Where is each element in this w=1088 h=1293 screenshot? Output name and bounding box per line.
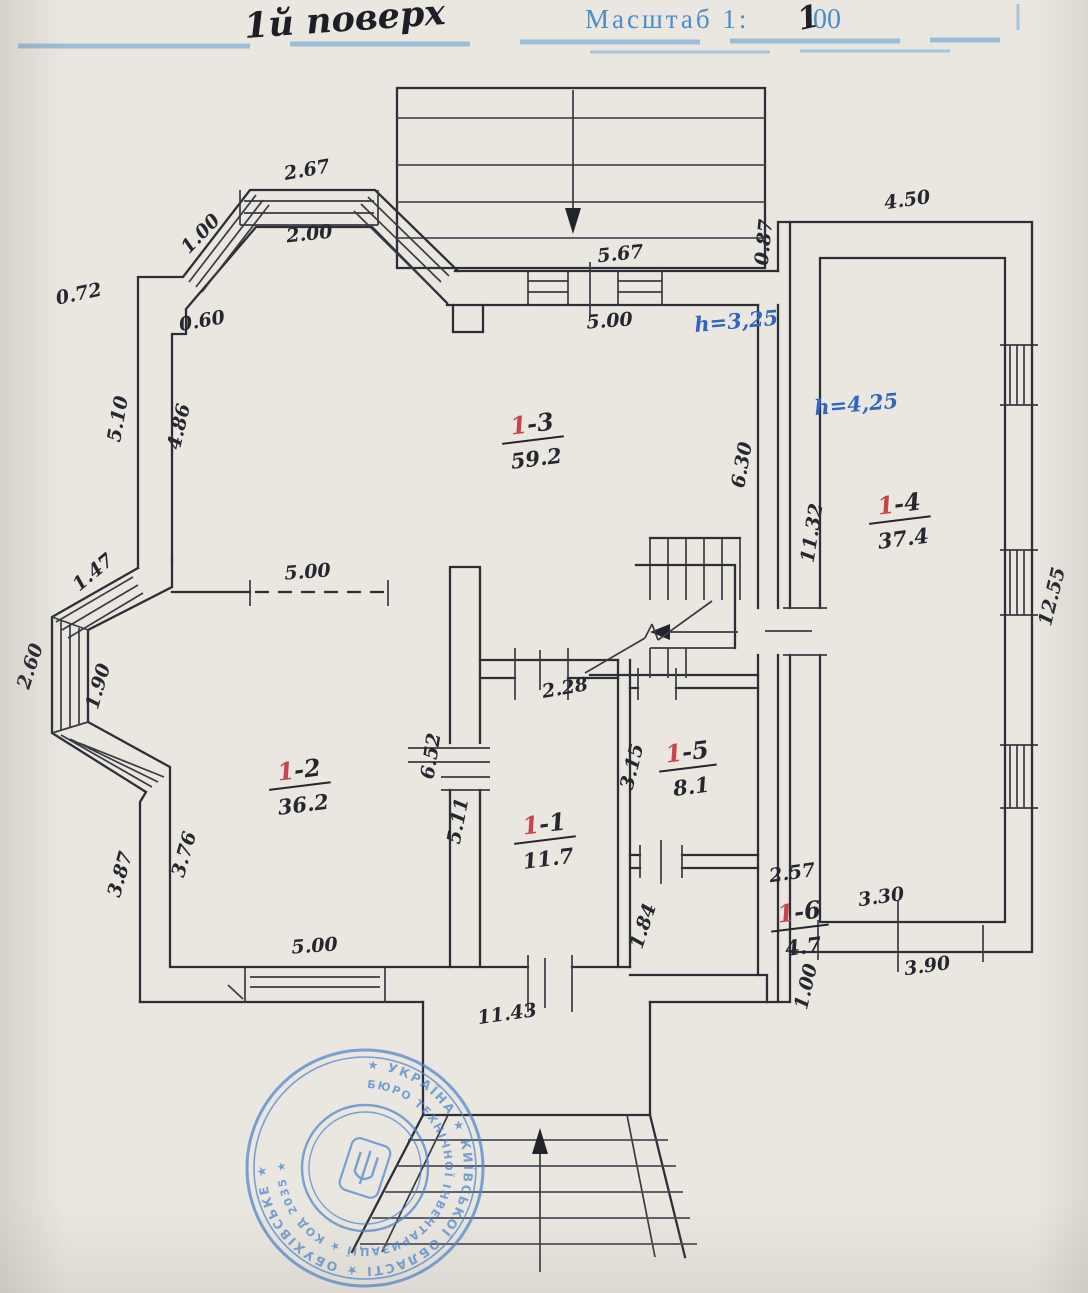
svg-text:1-2: 1-2	[276, 753, 323, 787]
dimension-label: 5.11	[443, 796, 473, 846]
room-area: 11.7	[521, 843, 575, 874]
dimension-tick	[818, 900, 983, 972]
window-top-left	[528, 271, 568, 305]
room-area: 36.2	[276, 789, 330, 820]
room-number: -2	[292, 753, 322, 785]
header-dashed-line	[18, 44, 470, 46]
window-nw-top	[240, 190, 378, 225]
dimension-label: 5.67	[596, 241, 644, 268]
floorplan-drawing: 1й поверх Масштаб 1: 1 00	[0, 0, 1088, 1293]
scale-value-printed: 00	[813, 4, 841, 35]
room-labels: 1-3 59.2 1-2 36.2 1-1 11.7 1-5 8.1 1-6 4…	[265, 406, 934, 963]
doorway-1-6	[640, 840, 682, 884]
dimension-label: 2.57	[767, 859, 817, 887]
dimension-label: 3.76	[167, 829, 201, 880]
dimension-label: 12.55	[1034, 565, 1070, 628]
dimension-label: 4.86	[163, 402, 195, 452]
dimension-label: 1.90	[81, 661, 115, 712]
dimension-label: 0.72	[54, 279, 104, 310]
room-number: -1	[537, 807, 567, 839]
header: 1й поверх Масштаб 1: 1 00	[18, 0, 1018, 52]
door-to-wing	[765, 608, 827, 655]
room-area: 37.4	[876, 523, 930, 554]
height-notes: h=3,25 h=4,25	[693, 305, 899, 420]
room-label-1-4: 1-4 37.4	[865, 486, 934, 555]
window-west-lower-angled	[61, 735, 164, 787]
doorway-1-5	[638, 668, 676, 700]
room-number: -3	[525, 407, 555, 439]
dimension-label: 5.00	[291, 933, 339, 958]
dimension-label: 2.00	[284, 221, 333, 248]
window-ne-angled	[354, 197, 449, 289]
dimension-label: 1.00	[790, 962, 822, 1012]
room-label-1-5: 1-5 8.1	[655, 734, 720, 803]
internal-staircase	[585, 538, 740, 678]
dimension-label: 6.52	[417, 731, 446, 780]
room-area: 8.1	[671, 772, 711, 801]
scale-label: Масштаб 1:	[585, 4, 749, 34]
dimension-label: 1.47	[68, 549, 118, 596]
svg-text:1-4: 1-4	[876, 487, 923, 521]
dimension-label: 5.10	[103, 394, 133, 443]
dimension-label: 3.87	[103, 849, 137, 900]
dimension-label: 3.90	[903, 952, 952, 980]
window-west-left	[52, 617, 88, 733]
svg-text:1-3: 1-3	[509, 407, 556, 441]
room-label-1-2: 1-2 36.2	[265, 752, 334, 821]
dimension-label: 5.00	[284, 559, 332, 584]
bti-stamp: ★ УКРАЇНА ★ КИЇВСЬКОЇ ОБЛАСТІ ★ ОБУХІВСЬ…	[247, 1050, 483, 1286]
header-dashed-line-2	[590, 51, 950, 52]
bottom-exterior-stairs	[352, 1002, 697, 1272]
stairs-down-arrow-icon	[565, 208, 581, 234]
dimension-label: 11.32	[797, 502, 828, 564]
room-area: 59.2	[509, 443, 563, 474]
window-top-right	[618, 271, 662, 305]
dimension-tick	[250, 580, 388, 606]
window-south	[228, 967, 385, 1002]
header-dashed-line	[520, 40, 1000, 42]
stairs-up-arrow-icon	[532, 1128, 548, 1154]
room-number: -5	[680, 735, 710, 767]
dimension-label: 4.50	[883, 186, 932, 214]
top-exterior-stairs	[397, 88, 765, 268]
svg-text:1-1: 1-1	[521, 807, 568, 841]
dimension-label: 5.00	[586, 308, 634, 333]
dimension-label: 2.67	[281, 155, 331, 185]
room-label-1-1: 1-1 11.7	[510, 806, 579, 875]
dimension-label: 6.30	[727, 440, 757, 489]
dimension-label: 0.87	[751, 218, 778, 266]
floorplan-page: 1й поверх Масштаб 1: 1 00	[0, 0, 1088, 1293]
room-number: -6	[792, 894, 822, 926]
dimension-label: 2.28	[539, 673, 589, 703]
exterior-walls	[52, 190, 790, 1002]
height-note-main: h=3,25	[693, 305, 779, 337]
floor-title: 1й поверх	[243, 0, 448, 47]
dimension-label: 3.15	[616, 741, 649, 791]
dimension-label: 11.43	[476, 999, 538, 1029]
room-label-1-3: 1-3 59.2	[498, 406, 567, 475]
svg-text:1-5: 1-5	[664, 735, 711, 769]
svg-text:1-6: 1-6	[776, 894, 823, 928]
stairs-break-line	[585, 601, 712, 673]
room-number: -4	[892, 487, 922, 519]
dimension-label: 2.60	[12, 641, 48, 693]
room-area: 4.7	[784, 932, 824, 961]
dimension-label: 0.60	[177, 306, 226, 336]
height-note-wing: h=4,25	[813, 388, 899, 420]
